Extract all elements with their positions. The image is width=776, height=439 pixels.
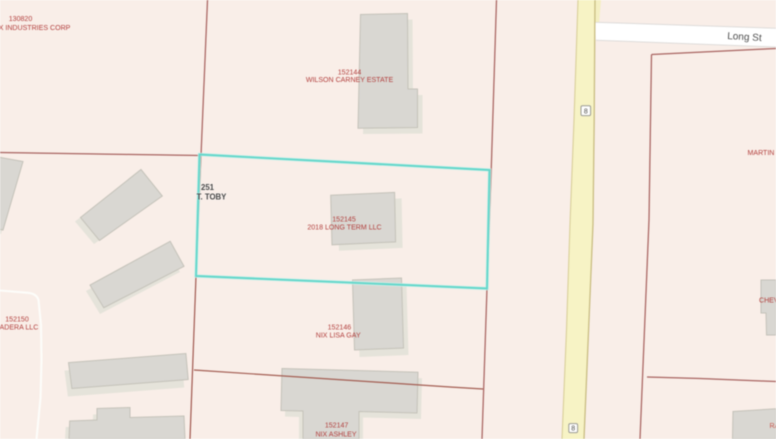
svg-text:152144: 152144	[338, 70, 362, 77]
svg-text:8: 8	[571, 426, 575, 433]
svg-text:RAY: RAY	[770, 423, 776, 430]
svg-text:Long St: Long St	[727, 31, 762, 44]
svg-text:NIX LISA GAY: NIX LISA GAY	[316, 333, 361, 340]
svg-text:WILSON CARNEY ESTATE: WILSON CARNEY ESTATE	[306, 77, 394, 84]
svg-text:251: 251	[201, 183, 215, 192]
svg-text:152147: 152147	[325, 423, 349, 430]
svg-text:MADERA LLC: MADERA LLC	[0, 325, 38, 332]
svg-text:130820: 130820	[9, 16, 33, 23]
svg-text:8: 8	[584, 108, 588, 115]
svg-text:CHEVRON: CHEVRON	[759, 298, 776, 305]
svg-text:152145: 152145	[332, 217, 356, 224]
svg-text:152146: 152146	[328, 325, 352, 332]
svg-text:MARTIN S: MARTIN S	[748, 150, 776, 157]
svg-text:T. TOBY: T. TOBY	[197, 193, 228, 202]
svg-text:NIX ASHLEY: NIX ASHLEY	[315, 432, 356, 439]
svg-text:2018 LONG TERM LLC: 2018 LONG TERM LLC	[307, 225, 381, 232]
svg-text:152150: 152150	[5, 317, 29, 324]
svg-text:NIX INDUSTRIES CORP: NIX INDUSTRIES CORP	[0, 25, 71, 32]
